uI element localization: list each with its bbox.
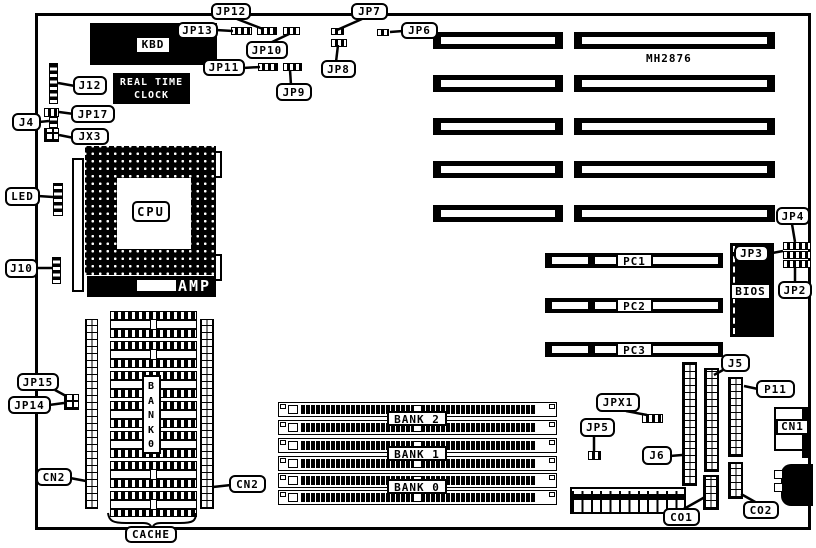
callout-jp7: JP7 bbox=[351, 3, 388, 20]
p11-connector bbox=[728, 377, 743, 457]
simm-clip bbox=[549, 492, 555, 497]
cache-pinrow bbox=[110, 341, 197, 350]
callout-co2: CO2 bbox=[743, 501, 779, 519]
jpx1-jumper bbox=[642, 414, 663, 423]
callout-jp4: JP4 bbox=[776, 207, 810, 225]
isa-slot-3-long bbox=[574, 118, 775, 135]
callout-jp11: JP11 bbox=[203, 59, 245, 76]
bank2-label: BANK 2 bbox=[387, 411, 447, 426]
cache-body bbox=[156, 380, 197, 389]
pci-slot-2-key2 bbox=[595, 302, 718, 309]
jp11-jumper bbox=[258, 63, 278, 71]
j4-connector bbox=[49, 117, 58, 128]
jp6-jumper bbox=[377, 29, 389, 36]
keyboard-din-connector bbox=[781, 464, 813, 506]
callout-jp17: JP17 bbox=[71, 105, 115, 123]
j5-connector bbox=[704, 368, 719, 472]
cache-body bbox=[110, 320, 151, 329]
cache-pinrow bbox=[110, 509, 197, 517]
pci-slot-2-key bbox=[552, 302, 588, 309]
isa-slot-2-long bbox=[574, 75, 775, 92]
callout-j4: J4 bbox=[12, 113, 41, 131]
callout-jp12: JP12 bbox=[211, 3, 251, 20]
simm-clip bbox=[280, 492, 286, 497]
simm-clip bbox=[549, 440, 555, 445]
callout-jx3: JX3 bbox=[71, 128, 109, 145]
simm-clip bbox=[288, 423, 298, 432]
jp7-jumper bbox=[331, 28, 344, 35]
cache-body bbox=[156, 470, 197, 479]
cache-body bbox=[110, 470, 151, 479]
simm-clip bbox=[288, 493, 298, 502]
pci-slot-1-key bbox=[552, 257, 588, 264]
co1-connector bbox=[703, 475, 719, 510]
co2-connector bbox=[728, 462, 743, 499]
real-time-clock-chip: REAL TIME CLOCK bbox=[113, 73, 190, 104]
cache-pinrow bbox=[110, 479, 197, 488]
jp10-jumper bbox=[283, 27, 300, 35]
cache-bank0-vertical-label: BANK0 bbox=[142, 375, 161, 454]
callout-j12: J12 bbox=[73, 76, 107, 95]
isa-slot-1-long bbox=[574, 32, 775, 49]
simm-clip bbox=[288, 459, 298, 468]
simm-clip bbox=[288, 476, 298, 485]
callout-cache: CACHE bbox=[125, 526, 177, 543]
jp3-jumper-row2 bbox=[783, 251, 811, 259]
motherboard-diagram: MH2876 KBD REAL TIME CLOCK CPU AMP PC1 P… bbox=[0, 0, 816, 548]
simm-notch bbox=[413, 493, 422, 502]
callout-jp5: JP5 bbox=[580, 418, 615, 437]
jx3-jumper bbox=[44, 128, 59, 142]
cache-body bbox=[156, 500, 197, 509]
cn2-left-connector bbox=[85, 319, 98, 509]
callout-jp6: JP6 bbox=[401, 22, 438, 39]
pci-slot-1-key2 bbox=[595, 257, 718, 264]
jp3-jumper-row1 bbox=[783, 242, 811, 250]
isa-slot-1-short bbox=[433, 32, 563, 49]
callout-co1: CO1 bbox=[663, 508, 700, 526]
callout-jp14: JP14 bbox=[8, 396, 51, 414]
callout-jpx1: JPX1 bbox=[596, 393, 640, 412]
cn2-right-connector bbox=[200, 319, 214, 509]
callout-cn2-left: CN2 bbox=[36, 468, 72, 486]
cache-pinrow bbox=[110, 461, 197, 470]
cache-pinrow bbox=[110, 329, 197, 338]
cpu-lever bbox=[72, 158, 84, 292]
amp-label: AMP bbox=[178, 277, 211, 295]
cache-pinrow bbox=[110, 491, 197, 500]
cache-body bbox=[156, 410, 197, 419]
isa-slot-2-short bbox=[433, 75, 563, 92]
jp9-jumper bbox=[283, 63, 302, 71]
cpu-socket-tab-top bbox=[214, 151, 222, 178]
pc2-label: PC2 bbox=[616, 298, 653, 313]
cache-pinrow bbox=[110, 311, 197, 320]
simm-clip bbox=[280, 440, 286, 445]
cache-body bbox=[156, 440, 197, 449]
simm-clip bbox=[280, 422, 286, 427]
jp17-jumper bbox=[44, 108, 59, 117]
simm-clip bbox=[288, 405, 298, 414]
pci-slot-3-key bbox=[552, 346, 588, 353]
callout-jp2: JP2 bbox=[778, 281, 812, 299]
isa-slot-3-short bbox=[433, 118, 563, 135]
isa-slot-4-long bbox=[574, 161, 775, 178]
jp12-jumper bbox=[257, 27, 277, 35]
callout-jp9: JP9 bbox=[276, 83, 312, 101]
cache-body bbox=[156, 320, 197, 329]
simm-clip bbox=[549, 404, 555, 409]
j10-connector bbox=[52, 257, 61, 284]
cpu-label: CPU bbox=[132, 201, 170, 222]
amp-window bbox=[137, 280, 176, 291]
din-pin bbox=[774, 483, 783, 492]
isa-slot-5-short bbox=[433, 205, 563, 222]
cn1-label: CN1 bbox=[776, 419, 809, 435]
bank1-label: BANK 1 bbox=[387, 446, 447, 461]
led-connector bbox=[53, 183, 63, 216]
callout-j10: J10 bbox=[5, 259, 38, 278]
callout-j6: J6 bbox=[642, 446, 672, 465]
callout-j5: J5 bbox=[721, 354, 750, 372]
amp-socket-bar: AMP bbox=[87, 276, 216, 297]
jp13-jumper bbox=[231, 27, 252, 35]
callout-jp3: JP3 bbox=[734, 245, 769, 262]
callout-jp13: JP13 bbox=[177, 22, 218, 39]
jp8-jumper bbox=[331, 39, 347, 47]
simm-clip bbox=[280, 458, 286, 463]
callout-jp10: JP10 bbox=[246, 41, 288, 59]
callout-p11: P11 bbox=[756, 380, 795, 398]
simm-clip bbox=[549, 458, 555, 463]
simm-clip bbox=[280, 404, 286, 409]
jp5-jumper bbox=[588, 451, 601, 460]
isa-slot-4-short bbox=[433, 161, 563, 178]
rtc-label-line1: REAL TIME bbox=[113, 76, 190, 89]
board-model: MH2876 bbox=[646, 52, 692, 65]
isa-slot-5-long bbox=[574, 205, 775, 222]
simm-clip bbox=[280, 475, 286, 480]
simm-clip bbox=[549, 475, 555, 480]
pc3-label: PC3 bbox=[616, 342, 653, 357]
cache-pinrow bbox=[110, 359, 197, 368]
j6-connector bbox=[682, 362, 697, 486]
bank0-label: BANK 0 bbox=[387, 479, 447, 494]
pci-slot-3-key2 bbox=[595, 346, 718, 353]
jp3-jumper-row3 bbox=[783, 260, 811, 268]
din-pin bbox=[774, 470, 783, 479]
jp15-jp14-jumper bbox=[64, 394, 79, 410]
simm-clip bbox=[549, 422, 555, 427]
cpu-socket-tab-bottom bbox=[214, 254, 222, 281]
cache-body bbox=[110, 350, 151, 359]
rtc-label-line2: CLOCK bbox=[113, 89, 190, 102]
kbd-label: KBD bbox=[136, 37, 170, 53]
cache-body bbox=[156, 350, 197, 359]
pc1-label: PC1 bbox=[616, 253, 653, 268]
callout-cn2-right: CN2 bbox=[229, 475, 266, 493]
callout-jp8: JP8 bbox=[321, 60, 356, 78]
cache-body bbox=[110, 500, 151, 509]
callout-jp15: JP15 bbox=[17, 373, 59, 391]
bios-label: BIOS bbox=[731, 284, 770, 299]
simm-clip bbox=[288, 441, 298, 450]
j12-connector bbox=[49, 63, 58, 104]
callout-led: LED bbox=[5, 187, 40, 206]
